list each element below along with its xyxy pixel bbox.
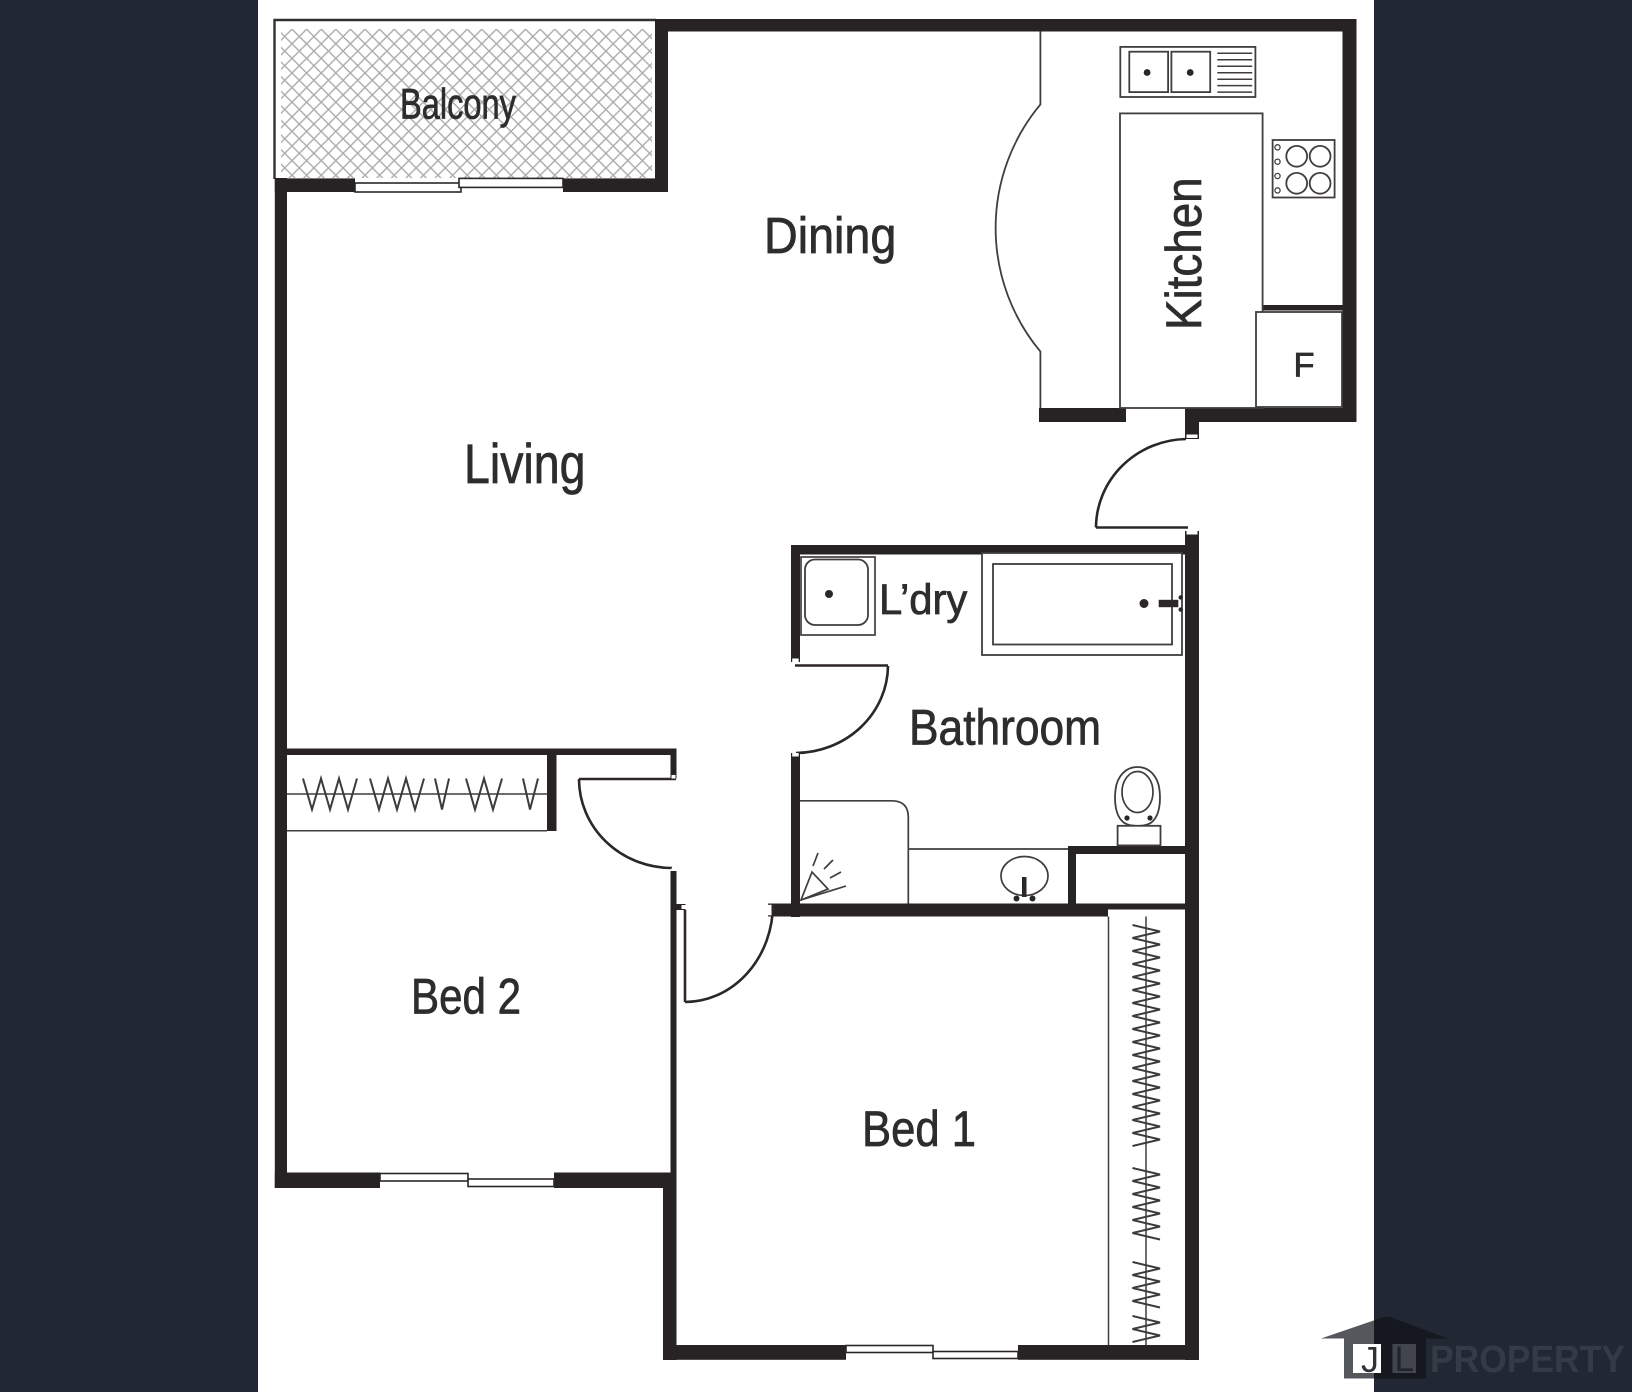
svg-text:Dining: Dining: [764, 208, 896, 264]
svg-text:L’dry: L’dry: [879, 575, 968, 623]
svg-text:Kitchen: Kitchen: [1156, 177, 1212, 330]
svg-text:Balcony: Balcony: [400, 81, 516, 128]
svg-text:Living: Living: [464, 433, 585, 495]
svg-text:Bathroom: Bathroom: [909, 700, 1101, 756]
svg-text:Bed 1: Bed 1: [862, 1101, 976, 1156]
svg-text:L: L: [1395, 1340, 1414, 1379]
svg-text:PROPERTY: PROPERTY: [1430, 1338, 1625, 1380]
svg-text:Bed 2: Bed 2: [411, 968, 521, 1024]
svg-text:J: J: [1361, 1339, 1379, 1380]
svg-text:F: F: [1294, 346, 1315, 384]
